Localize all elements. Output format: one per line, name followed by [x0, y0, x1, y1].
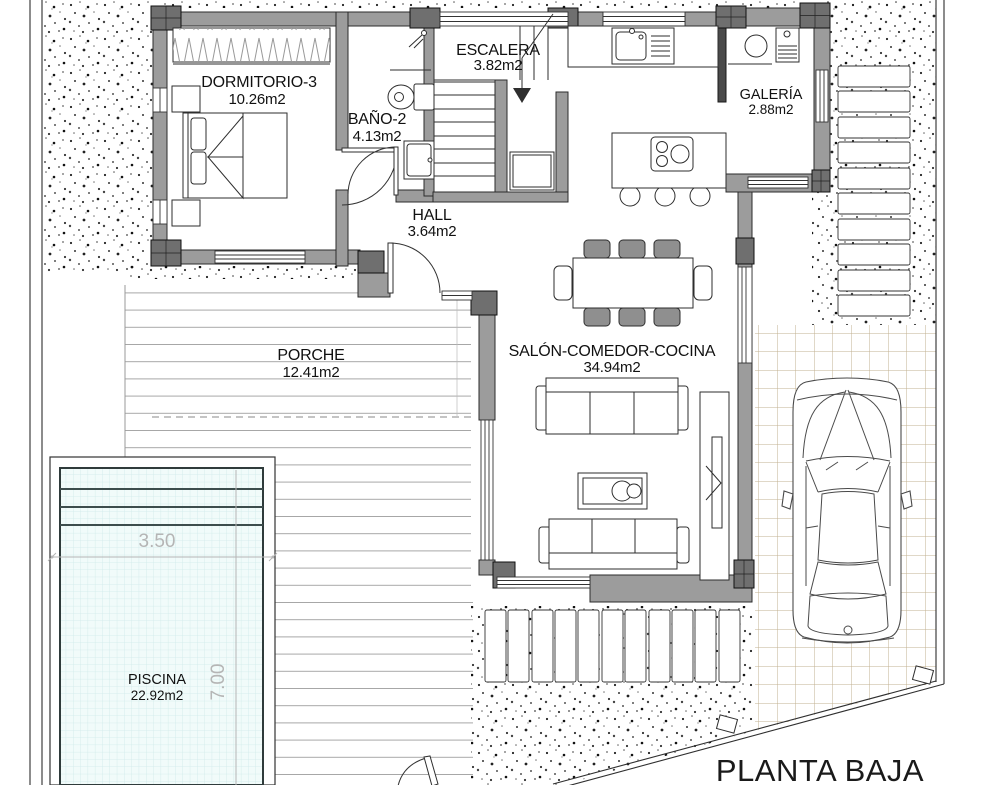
sofa-bottom [539, 519, 689, 569]
pool: 3.50 7.00 [48, 457, 277, 785]
room-label-piscina: PISCINA [128, 672, 186, 688]
bar-stool [655, 186, 675, 206]
dining-chair [619, 308, 645, 326]
dining-chair [554, 266, 572, 300]
window-kitchen-north [603, 12, 685, 26]
room-area-porche: 12.41m2 [283, 364, 340, 381]
room-area-dormitorio: 10.26m2 [229, 91, 286, 108]
room-area-salon: 34.94m2 [584, 359, 641, 376]
window-living-east [738, 267, 752, 363]
water-heater [776, 28, 799, 62]
entrance-sidelight [442, 291, 472, 300]
window-bedroom-south [215, 251, 305, 263]
sliding-door-west [481, 420, 493, 560]
kitchen-galeria-partition [718, 26, 726, 102]
window-stairs-north [440, 12, 568, 26]
nightstand [172, 200, 200, 226]
cooktop [651, 137, 693, 171]
dining-chair [584, 308, 610, 326]
kitchen-counter [568, 26, 718, 67]
dining-chair [654, 308, 680, 326]
dining-chair [694, 266, 712, 300]
kitchen-sink [612, 28, 674, 64]
floor-plan: 3.50 7.00 [0, 0, 992, 785]
room-label-salon: SALÓN-COMEDOR-COCINA [509, 341, 716, 360]
kitchen-island [612, 133, 726, 206]
room-area-hall: 3.64m2 [408, 223, 457, 240]
dining-table [573, 258, 693, 308]
window-galeria-south [748, 177, 808, 188]
dining-chair [619, 240, 645, 258]
path-slats-bottom [485, 610, 740, 682]
bed [183, 113, 287, 198]
room-label-bano: BAÑO-2 [348, 108, 407, 128]
bar-stool [620, 186, 640, 206]
gravel-area-left [42, 0, 153, 273]
room-label-dormitorio: DORMITORIO-3 [201, 74, 317, 91]
pillow [191, 152, 206, 184]
car-top-view [782, 378, 912, 643]
room-label-hall: HALL [412, 207, 452, 224]
room-label-porche: PORCHE [277, 347, 344, 364]
bar-stool [690, 186, 710, 206]
room-area-galeria: 2.88m2 [748, 102, 793, 117]
fridge [510, 152, 554, 190]
room-label-galeria: GALERÍA [740, 86, 803, 103]
sofa-top [536, 378, 688, 434]
tv-unit [700, 392, 729, 580]
plan-title: PLANTA BAJA [716, 753, 924, 785]
wardrobe [173, 28, 330, 64]
pillow [191, 118, 206, 150]
dining-chair [584, 240, 610, 258]
coffee-table [578, 473, 647, 509]
bathroom-vanity [404, 141, 434, 179]
dining-chair [654, 240, 680, 258]
nightstand [172, 86, 200, 112]
room-area-bano: 4.13m2 [353, 128, 402, 145]
pool-width-value: 3.50 [139, 531, 176, 552]
room-area-piscina: 22.92m2 [131, 688, 184, 703]
floor-plan-drawing: 3.50 7.00 [0, 0, 992, 785]
window-galeria-east [816, 70, 828, 122]
room-area-escalera: 3.82m2 [474, 57, 523, 74]
sliding-door-south [497, 577, 590, 588]
pool-length-value: 7.00 [208, 664, 229, 701]
